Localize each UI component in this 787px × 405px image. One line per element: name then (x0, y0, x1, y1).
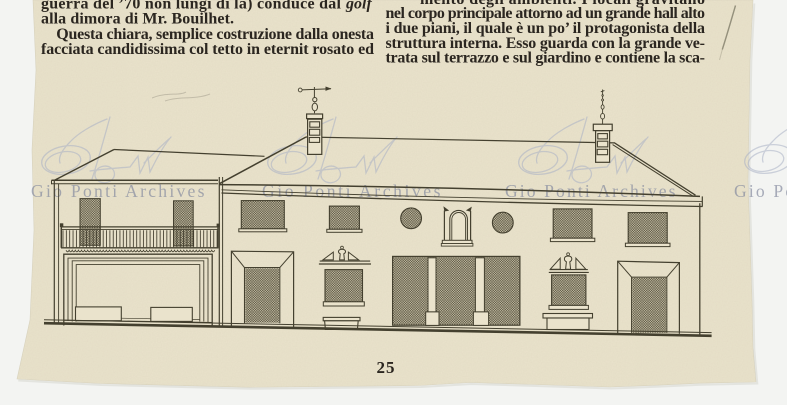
svg-text:facciata candidissima col tett: facciata candidissima col tetto in etern… (41, 41, 374, 58)
svg-text:trata sul terrazzo e sul giard: trata sul terrazzo e sul giardino e cont… (386, 49, 706, 66)
svg-text:Gio Ponti Archives: Gio Ponti Archives (734, 181, 787, 201)
svg-text:golf: golf (345, 0, 373, 12)
svg-text:25: 25 (377, 358, 396, 377)
